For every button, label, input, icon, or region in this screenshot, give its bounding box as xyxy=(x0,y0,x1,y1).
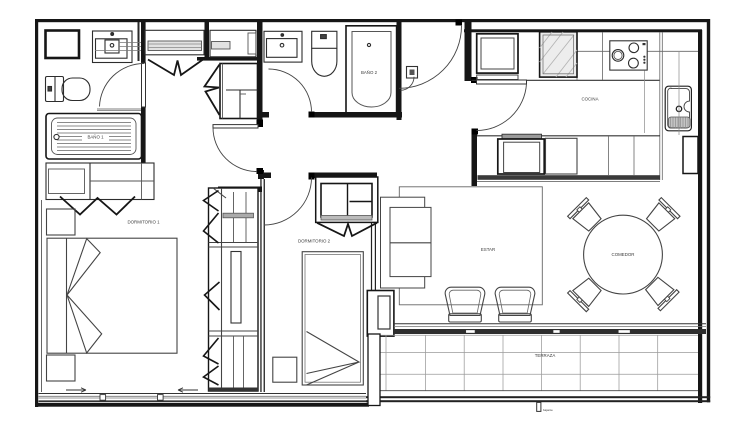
svg-text:DORMITORIO 2: DORMITORIO 2 xyxy=(298,239,331,244)
svg-text:TERRAZA: TERRAZA xyxy=(535,353,556,358)
svg-text:COMEDOR: COMEDOR xyxy=(612,252,635,257)
svg-text:ESTAR: ESTAR xyxy=(481,247,495,252)
svg-text:BAÑO 1: BAÑO 1 xyxy=(87,135,104,140)
svg-text:bajante: bajante xyxy=(543,408,553,412)
svg-text:COCINA: COCINA xyxy=(581,97,598,102)
svg-text:BAÑO 2: BAÑO 2 xyxy=(361,70,378,75)
svg-text:DORMITORIO 1: DORMITORIO 1 xyxy=(127,219,160,224)
